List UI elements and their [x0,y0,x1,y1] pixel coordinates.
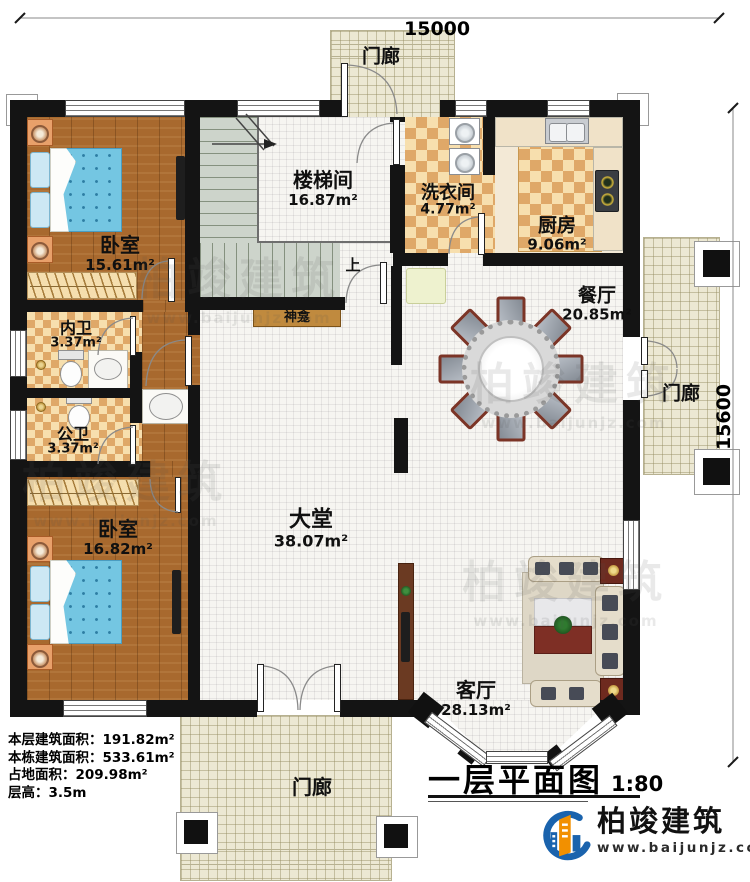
dining-table-top [478,336,544,402]
column [184,820,208,844]
logo-website: www.baijunjz.com [597,840,750,856]
wall [188,461,200,477]
wall [200,297,345,310]
wall [188,312,200,335]
stairs-up-label: 上 [345,257,360,273]
bed-pillow [30,566,50,602]
door-leaf [168,258,175,302]
wall [185,117,200,300]
sink-icon [94,358,122,380]
door-leaf [130,425,136,465]
door-leaf [334,664,341,712]
nightstand [27,119,53,146]
wall [340,700,420,717]
room-label-hall: 大堂 38.07m² [274,508,348,549]
wall [10,388,142,398]
washing-machine-icon [449,118,480,145]
wall [10,100,27,330]
column [703,458,730,485]
kitchen-sink-icon [545,118,589,144]
wall [390,165,405,253]
stair-flight-bottom [200,243,340,300]
logo-company-name: 柏竣建筑 [597,806,750,838]
bed-pillow [30,152,50,188]
floor-drain-icon [36,402,46,412]
room-label-bedroom1: 卧室 15.61m² [85,235,155,273]
company-logo: 柏竣建筑 www.baijunjz.com [533,806,750,868]
stove-icon [595,170,619,212]
wall [623,590,640,712]
door-leaf [175,477,181,513]
room-label-stairwell: 楼梯间 16.87m² [288,170,358,208]
dimension-top: 15000 [404,18,470,40]
door-leaf [257,664,264,712]
floor-bedroom1-door [143,300,187,312]
bed-pillow [30,192,50,228]
wall [147,700,257,717]
wardrobe [27,272,137,299]
floor-bedroom2-door [150,461,188,477]
wall [623,400,640,520]
tv-icon [176,156,185,220]
room-label-bath-inner: 内卫 3.37m² [50,319,101,350]
logo-mark-icon [533,806,591,868]
window [63,700,147,717]
wall [10,700,63,717]
room-label-bath-public: 公卫 3.37m² [47,425,98,456]
hall-cabinet [406,268,446,304]
tv-icon [172,570,181,634]
door-leaf [393,119,400,165]
plant-icon [554,616,572,634]
sofa-top [528,556,604,582]
wall [188,385,200,461]
room-label-dining: 餐厅 20.85m² [562,286,632,323]
bed-pillow [30,604,50,640]
wall [391,266,402,365]
sofa-bottom [530,680,602,707]
room-label-bedroom2: 卧室 16.82m² [83,519,153,557]
wall [10,460,27,717]
door-leaf [185,336,192,386]
window [10,330,27,377]
dimension-right: 15600 [713,384,735,450]
floor-corridor [142,312,188,461]
info-block: 本层建筑面积：191.82m² 本栋建筑面积：533.61m² 占地面积：209… [8,732,175,802]
window [65,100,185,117]
wall [188,477,200,717]
tv-icon [401,612,410,662]
floor-drain-icon [36,360,46,370]
porch-label-top: 门廊 [362,47,400,68]
wall [393,253,448,266]
nightstand [27,644,53,670]
washing-machine-icon [449,148,480,175]
window [547,100,590,117]
nightstand [27,236,53,263]
door-leaf [341,63,348,117]
room-label-kitchen: 厨房 9.06m² [527,216,586,253]
wardrobe [27,479,139,506]
floor-plan: 神龛 [0,0,750,882]
door-leaf [641,370,648,398]
plant-icon [401,586,411,596]
wall [394,418,408,473]
porch-bottom-step [180,864,392,865]
room-label-laundry: 洗衣间 4.77m² [420,184,475,219]
sink-icon [149,393,183,420]
nightstand [27,536,53,562]
sofa-right [595,586,625,676]
porch-label-bottom: 门廊 [292,777,332,799]
door-leaf [130,316,136,356]
window [455,100,487,117]
stair-flight-left [200,117,257,243]
toilet-icon [58,350,84,360]
wall [440,100,455,117]
title-underline-thin [428,801,588,802]
wall [10,461,150,477]
dining-set [449,307,573,431]
room-label-living: 客厅 28.13m² [441,680,511,718]
porch-bottom [180,715,392,881]
column [384,824,408,848]
column [703,250,730,277]
window [623,520,640,590]
window [237,100,320,117]
toilet-icon [60,361,82,387]
porch-label-right: 门廊 [662,384,700,405]
wall [10,300,143,312]
window [10,410,27,460]
wall [483,117,495,175]
shrine-label: 神龛 [284,310,310,325]
wall [483,253,637,266]
title-underline [428,795,640,798]
door-leaf [478,213,485,255]
door-leaf [641,337,648,365]
door-leaf [380,262,387,304]
wall [487,100,547,117]
wall [185,100,237,117]
wall [185,300,200,312]
